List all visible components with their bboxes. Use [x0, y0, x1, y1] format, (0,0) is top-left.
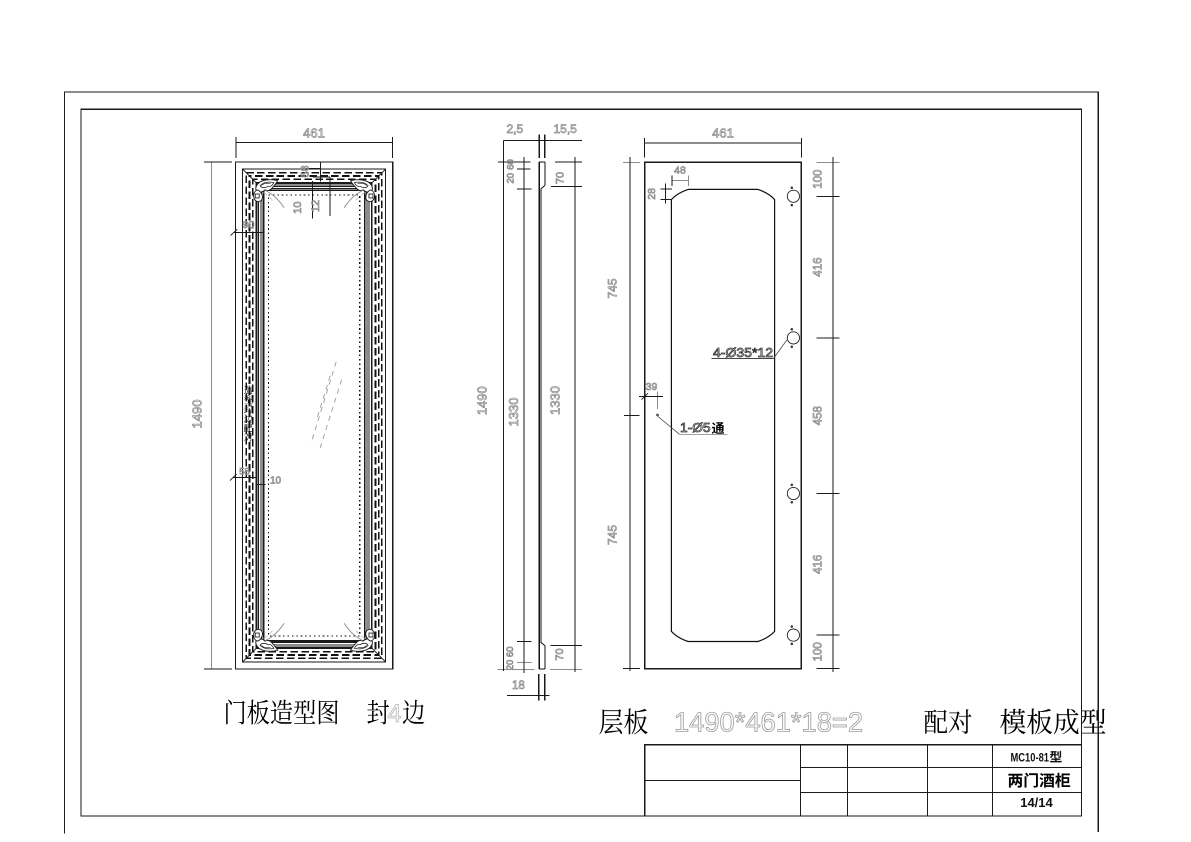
svg-text:458: 458	[813, 406, 825, 425]
svg-text:2,5: 2,5	[507, 122, 524, 136]
svg-text:461: 461	[303, 126, 325, 141]
svg-text:1330: 1330	[506, 398, 521, 427]
svg-text:15,5: 15,5	[554, 122, 578, 136]
svg-text:1330: 1330	[548, 386, 563, 415]
svg-text:10: 10	[270, 475, 282, 486]
svg-text:39: 39	[646, 381, 658, 393]
svg-text:70: 70	[554, 648, 566, 660]
svg-text:60: 60	[505, 159, 516, 170]
svg-text:14/14: 14/14	[1020, 795, 1053, 810]
svg-text:745: 745	[606, 525, 620, 545]
svg-text:4-Ø35*12: 4-Ø35*12	[713, 345, 773, 360]
svg-text:90: 90	[243, 219, 255, 231]
svg-text:1490: 1490	[475, 386, 490, 415]
svg-text:12: 12	[310, 200, 322, 212]
svg-text:10: 10	[292, 201, 304, 213]
svg-text:MC10-81: MC10-81	[1011, 750, 1050, 764]
svg-text:70: 70	[555, 172, 567, 184]
svg-text:1490*461*18=2: 1490*461*18=2	[674, 707, 863, 738]
svg-text:28: 28	[646, 188, 658, 200]
svg-text:1-Ø5: 1-Ø5	[680, 420, 711, 435]
svg-text:18: 18	[512, 680, 525, 692]
svg-text:58: 58	[239, 467, 250, 478]
svg-text:58: 58	[299, 165, 311, 177]
svg-text:1490: 1490	[190, 400, 205, 429]
svg-text:745: 745	[606, 278, 620, 298]
svg-text:20: 20	[505, 660, 516, 671]
svg-text:20: 20	[505, 173, 516, 184]
svg-text:416: 416	[813, 555, 825, 574]
svg-text:461: 461	[712, 126, 734, 141]
svg-text:4: 4	[388, 700, 402, 728]
svg-text:100: 100	[813, 642, 825, 661]
svg-text:60: 60	[505, 647, 516, 658]
svg-text:48: 48	[674, 165, 686, 177]
svg-text:100: 100	[813, 170, 825, 189]
svg-text:416: 416	[813, 258, 825, 277]
